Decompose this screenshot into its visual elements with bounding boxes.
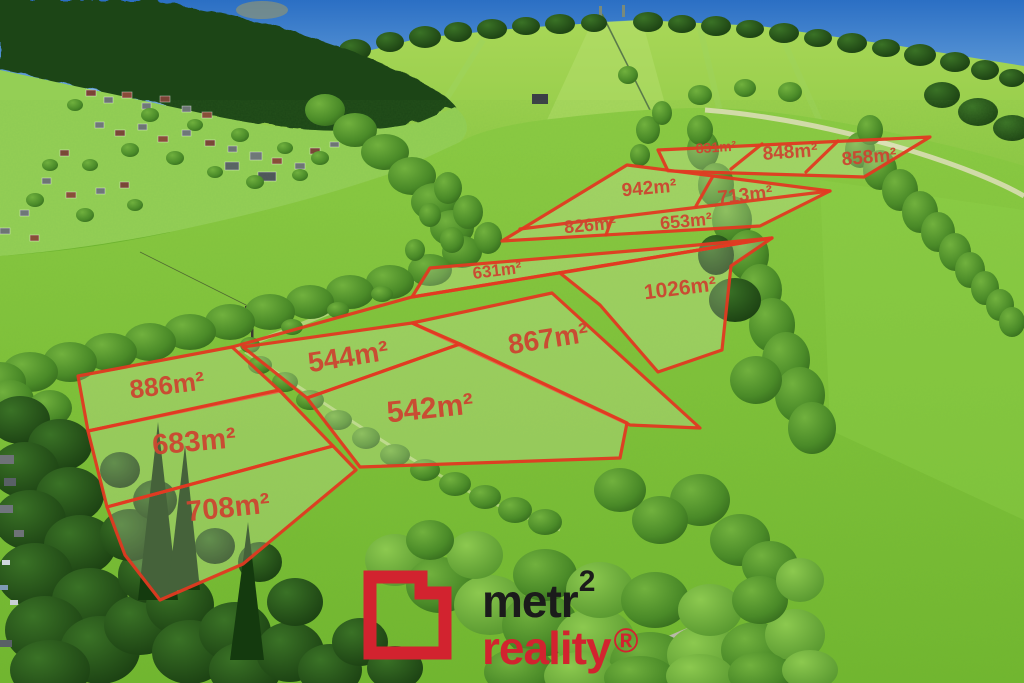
lift-mast: [622, 5, 625, 17]
logo-tagline-text: reality: [482, 622, 612, 674]
parcel-label-848: 848m²: [762, 140, 818, 165]
rocky-patch: [236, 1, 288, 19]
parcel-label-831: 831m²: [695, 138, 737, 157]
aerial-photo: 831m² 848m² 858m² 942m² 713m² 826m² 653m…: [0, 0, 1024, 683]
logo-name-sup: 2: [579, 565, 595, 598]
logo-name-text: metr: [482, 575, 579, 627]
logo-registered-icon: ®: [614, 622, 639, 660]
